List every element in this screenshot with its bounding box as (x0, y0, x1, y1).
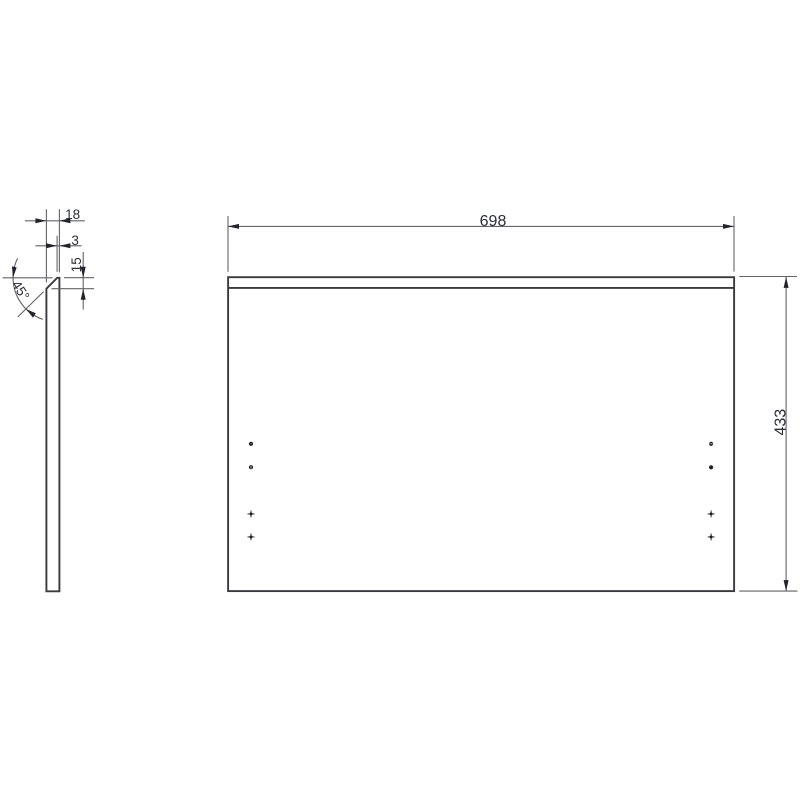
svg-text:15: 15 (69, 257, 84, 272)
svg-text:3: 3 (71, 233, 79, 248)
svg-text:433: 433 (773, 409, 790, 436)
svg-text:698: 698 (480, 213, 507, 230)
svg-text:18: 18 (65, 207, 80, 222)
